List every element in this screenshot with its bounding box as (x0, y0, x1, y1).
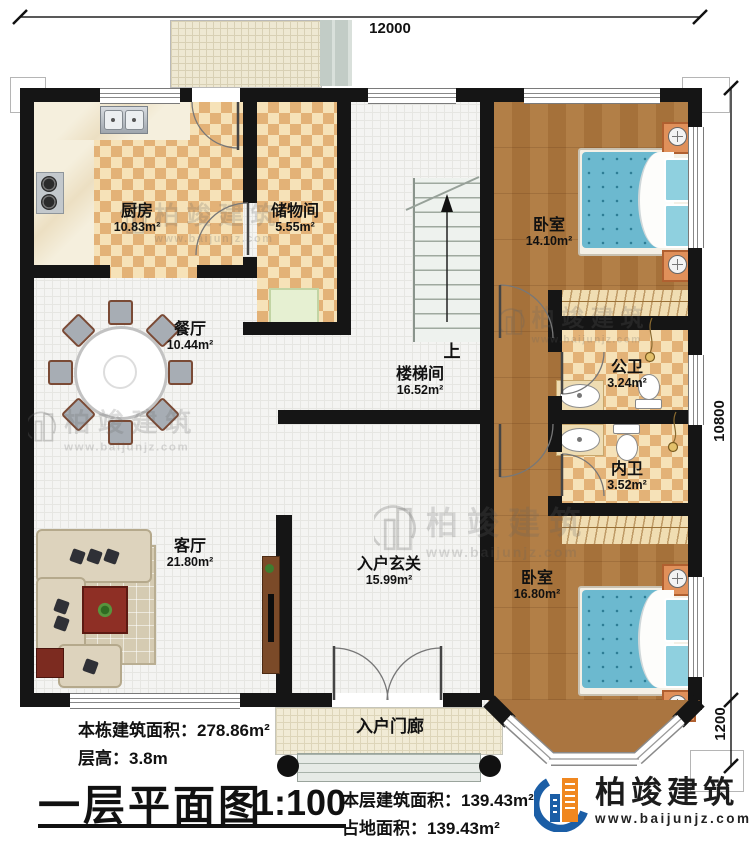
porch-column (277, 755, 299, 777)
room-name: 客厅 (140, 538, 240, 556)
watermark-building-icon (500, 306, 526, 338)
wall (480, 102, 494, 700)
window (688, 127, 704, 248)
room-label-bedroom-bottom: 卧室 16.80m² (487, 570, 587, 601)
wall (243, 257, 257, 278)
nightstand-knob (668, 127, 687, 146)
room-label-porch: 入户门廊 (328, 712, 452, 737)
sink-bowl (125, 110, 144, 130)
toilet-tank (635, 399, 662, 409)
wall (300, 693, 334, 707)
plant-icon (265, 564, 274, 573)
room-area: 5.55m² (245, 221, 345, 235)
sofa (36, 577, 86, 653)
sink-bowl (104, 110, 123, 130)
room-label-dining: 餐厅 10.44m² (140, 321, 240, 352)
wall (20, 265, 110, 278)
dining-chair (168, 360, 193, 385)
sofa-pillow (53, 598, 70, 615)
room-name: 储物间 (245, 203, 345, 221)
watermark-url: www.baijunjz.com (532, 333, 650, 345)
bath-counter (556, 424, 604, 456)
kitchen-sink (100, 106, 148, 134)
wall (20, 88, 34, 707)
brand-website: www.baijunjz.com (595, 811, 750, 826)
window (688, 355, 704, 425)
wall (197, 265, 243, 278)
toilet-tank (613, 424, 640, 434)
wall (243, 322, 351, 335)
room-name: 内卫 (577, 461, 677, 479)
staircase (413, 178, 482, 342)
room-area: 15.99m² (337, 574, 441, 588)
dimension-height-main: 10800 (711, 389, 729, 453)
dimension-height-bay: 1200 (712, 696, 728, 752)
window (524, 88, 660, 104)
room-label-private-bath: 内卫 3.52m² (577, 461, 677, 492)
sofa-pillow (82, 658, 99, 675)
wall (548, 410, 688, 424)
stair-direction-label: 上 (438, 337, 466, 362)
footprint-area: 占地面积：139.43m² (342, 814, 500, 839)
room-area: 14.10m² (499, 235, 599, 249)
watermark-text: 柏竣建筑 (426, 498, 590, 544)
burner-icon (41, 194, 57, 210)
room-label-bedroom-top: 卧室 14.10m² (499, 217, 599, 248)
room-label-living: 客厅 21.80m² (140, 538, 240, 569)
brand-name: 柏竣建筑 (595, 777, 750, 808)
nightstand-knob (668, 255, 687, 274)
wall (548, 396, 562, 410)
room-area: 10.83m² (87, 221, 187, 235)
plant-icon (97, 602, 113, 618)
watermark-url: www.baijunjz.com (64, 440, 198, 453)
watermark-building-icon (374, 502, 418, 556)
toilet-icon (612, 424, 642, 462)
watermark-url: www.baijunjz.com (426, 544, 590, 560)
watermark: 柏竣建筑 www.baijunjz.com (500, 300, 650, 345)
room-area: 3.24m² (577, 377, 677, 391)
room-label-public-bath: 公卫 3.24m² (577, 359, 677, 390)
room-area: 10.44m² (140, 339, 240, 353)
door-opening (192, 88, 240, 102)
room-name: 公卫 (577, 359, 677, 377)
window (70, 693, 240, 709)
window (688, 577, 704, 677)
sofa (36, 529, 152, 583)
room-name: 餐厅 (140, 321, 240, 339)
sofa-pillow (86, 548, 103, 565)
burner-icon (41, 176, 57, 192)
entry-steps (297, 753, 481, 782)
sofa-chaise (58, 644, 122, 688)
dimension-width: 12000 (348, 20, 432, 37)
rear-terrace (170, 20, 322, 88)
sofa-pillow (69, 548, 86, 565)
plan-scale: 1:100 (254, 782, 346, 824)
watermark-building-icon (28, 409, 58, 445)
toilet-bowl (616, 434, 638, 461)
door-opening (332, 693, 443, 707)
watermark-text: 柏竣建筑 (532, 300, 650, 333)
room-name: 楼梯间 (368, 366, 472, 384)
side-table (36, 648, 64, 678)
room-label-stairwell: 楼梯间 16.52m² (368, 366, 472, 397)
window (100, 88, 180, 104)
room-name: 入户玄关 (337, 556, 441, 574)
tv (268, 594, 274, 642)
nightstand-knob (668, 695, 687, 714)
watermark-text: 柏竣建筑 (64, 402, 198, 440)
room-label-storage: 储物间 5.55m² (245, 203, 345, 234)
room-name: 卧室 (487, 570, 587, 588)
room-label-foyer: 入户玄关 15.99m² (337, 556, 441, 587)
wall (243, 102, 257, 203)
watermark: 柏竣建筑 www.baijunjz.com (374, 498, 590, 560)
window (368, 88, 456, 104)
room-area: 16.80m² (487, 588, 587, 602)
floor-height: 层高：3.8m (78, 744, 168, 769)
stove (36, 172, 64, 214)
dining-chair (48, 360, 73, 385)
wall (441, 693, 482, 707)
wall (548, 424, 562, 452)
floor-plan: 柏竣建筑 www.baijunjz.com 柏竣建筑 www.baijunjz.… (0, 0, 750, 844)
wall (278, 410, 494, 424)
room-area: 16.52m² (368, 384, 472, 398)
floor-area: 本层建筑面积：139.43m² (342, 786, 534, 811)
room-area: 21.80m² (140, 556, 240, 570)
brand-logo: 柏竣建筑 www.baijunjz.com (534, 770, 750, 832)
title-underline (38, 824, 346, 828)
building-total-area: 本栋建筑面积：278.86m² (78, 716, 270, 741)
washbasin-icon (560, 428, 600, 452)
room-name: 厨房 (87, 203, 187, 221)
porch-column (479, 755, 501, 777)
sofa-pillow (103, 548, 120, 565)
room-label-kitchen: 厨房 10.83m² (87, 203, 187, 234)
brand-logo-icon (534, 770, 588, 832)
watermark: 柏竣建筑 www.baijunjz.com (28, 402, 199, 453)
room-name: 卧室 (499, 217, 599, 235)
nightstand-knob (668, 569, 687, 588)
dining-chair (108, 300, 133, 325)
sofa-pillow (53, 615, 70, 632)
coffee-table (82, 586, 128, 634)
room-area: 3.52m² (577, 479, 677, 493)
